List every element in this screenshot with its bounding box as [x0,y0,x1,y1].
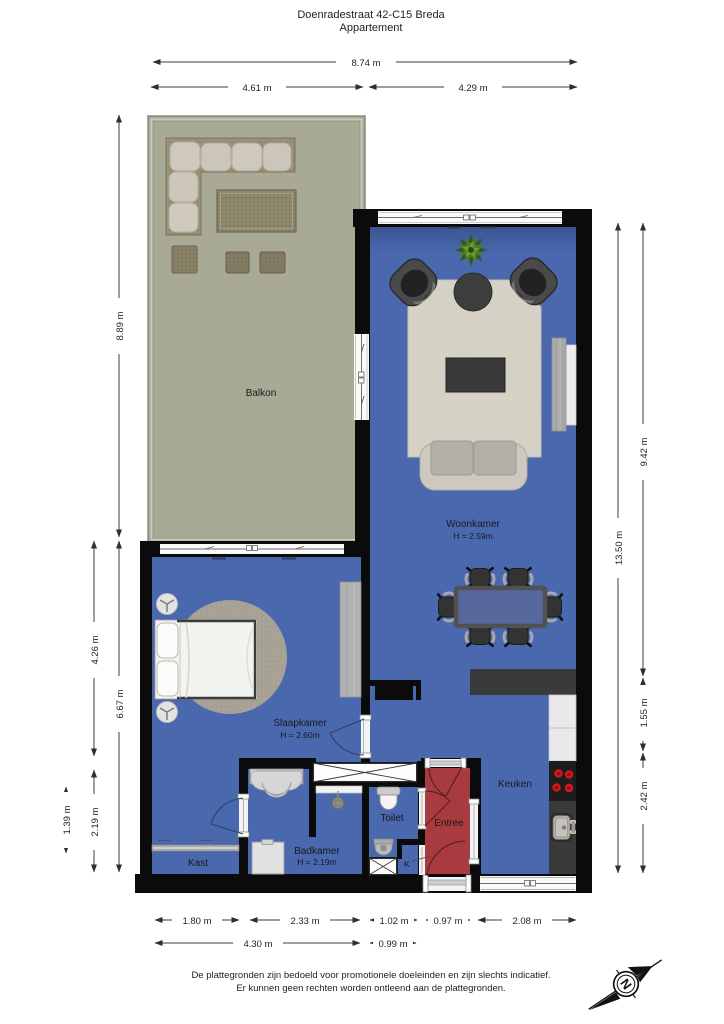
svg-text:8.74 m: 8.74 m [351,58,380,69]
svg-text:Balkon: Balkon [246,388,277,399]
svg-text:2.08 m: 2.08 m [512,916,541,927]
svg-text:Keuken: Keuken [498,779,532,790]
svg-text:Badkamer: Badkamer [294,846,340,857]
svg-text:H = 2.60m: H = 2.60m [280,730,319,740]
svg-text:1.55 m: 1.55 m [639,698,650,727]
svg-text:2.42 m: 2.42 m [639,781,650,810]
svg-text:0.99 m: 0.99 m [378,939,407,950]
svg-text:2.19 m: 2.19 m [90,807,101,836]
svg-text:4.61 m: 4.61 m [242,83,271,94]
svg-text:0.97 m: 0.97 m [433,916,462,927]
svg-text:13.50 m: 13.50 m [614,531,625,565]
svg-text:4.26 m: 4.26 m [90,635,101,664]
svg-text:Er kunnen geen rechten worden: Er kunnen geen rechten worden ontleend a… [236,983,505,994]
svg-text:Entree: Entree [434,818,464,829]
svg-text:Toilet: Toilet [380,813,404,824]
svg-text:6.67 m: 6.67 m [115,689,126,718]
svg-text:1.80 m: 1.80 m [182,916,211,927]
svg-text:H = 2.59m: H = 2.59m [453,531,492,541]
svg-text:4.29 m: 4.29 m [458,83,487,94]
svg-text:8.89 m: 8.89 m [115,311,126,340]
svg-text:1.39 m: 1.39 m [62,805,73,834]
svg-text:H = 2.19m: H = 2.19m [297,857,336,867]
svg-text:1.02 m: 1.02 m [379,916,408,927]
svg-text:Kast: Kast [188,858,208,869]
svg-text:2.33 m: 2.33 m [290,916,319,927]
svg-text:Slaapkamer: Slaapkamer [273,718,327,729]
svg-text:De plattegronden zijn bedoeld: De plattegronden zijn bedoeld voor promo… [191,970,550,981]
svg-text:K: K [404,859,410,869]
svg-text:Woonkamer: Woonkamer [446,519,500,530]
svg-text:4.30 m: 4.30 m [243,939,272,950]
svg-text:9.42 m: 9.42 m [639,437,650,466]
svg-text:Doenradestraat 42-C15 Breda: Doenradestraat 42-C15 Breda [297,9,445,21]
svg-text:Appartement: Appartement [340,22,403,34]
